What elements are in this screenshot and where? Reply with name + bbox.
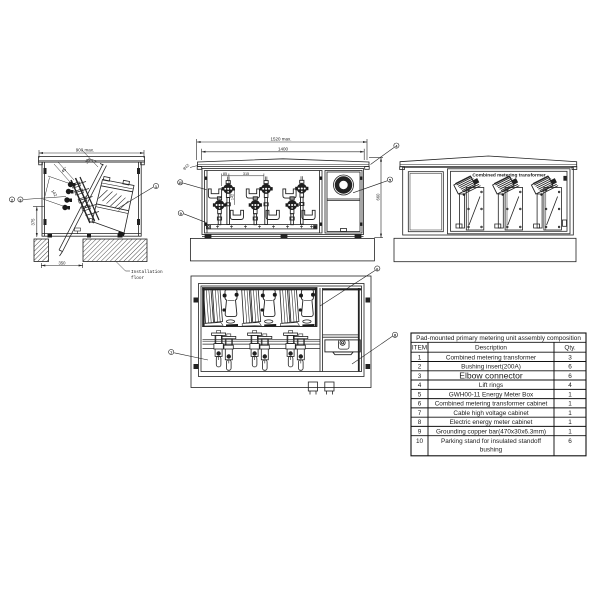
svg-text:85: 85: [223, 172, 227, 176]
svg-text:2: 2: [418, 364, 422, 371]
svg-text:6: 6: [568, 373, 572, 380]
svg-text:315: 315: [243, 172, 249, 176]
svg-text:ITEM: ITEM: [412, 345, 427, 352]
svg-text:6: 6: [568, 364, 572, 371]
svg-text:1400: 1400: [278, 146, 289, 151]
svg-text:Cable high voltage cabinet: Cable high voltage cabinet: [453, 410, 529, 417]
svg-text:Electric energy meter cabinet: Electric energy meter cabinet: [450, 419, 533, 426]
svg-text:1: 1: [568, 401, 572, 408]
svg-text:7: 7: [418, 410, 422, 417]
svg-text:1: 1: [568, 410, 572, 417]
svg-text:Pad-mounted primary metering u: Pad-mounted primary metering unit assemb…: [416, 335, 581, 342]
svg-text:Elbow connector: Elbow connector: [459, 371, 523, 381]
svg-text:Grounding copper bar(470x30x6.: Grounding copper bar(470x30x6.3mm): [436, 429, 546, 436]
svg-text:Installation: Installation: [131, 270, 163, 275]
svg-text:4: 4: [568, 382, 572, 389]
svg-text:142: 142: [231, 194, 235, 200]
svg-text:8: 8: [418, 419, 422, 426]
svg-text:Lift rings: Lift rings: [479, 382, 503, 389]
svg-text:10: 10: [178, 181, 182, 185]
svg-text:5: 5: [418, 391, 422, 398]
svg-text:4: 4: [418, 382, 422, 389]
svg-text:floor: floor: [131, 276, 145, 281]
svg-text:1: 1: [568, 419, 572, 426]
svg-text:3: 3: [568, 354, 572, 361]
svg-text:Parking stand for insulated st: Parking stand for insulated standoff: [441, 438, 541, 445]
svg-text:bushing: bushing: [480, 447, 503, 454]
svg-text:350: 350: [59, 261, 67, 266]
svg-text:9: 9: [418, 429, 422, 436]
svg-text:Combined metering transformer: Combined metering transformer cabinet: [435, 401, 548, 408]
svg-text:900 max.: 900 max.: [76, 148, 95, 153]
svg-text:10: 10: [416, 438, 424, 445]
svg-text:Description: Description: [475, 345, 507, 352]
svg-text:1: 1: [418, 354, 422, 361]
svg-text:375: 375: [31, 218, 36, 226]
svg-text:1520 max.: 1520 max.: [270, 137, 291, 142]
svg-text:1: 1: [568, 429, 572, 436]
svg-text:6: 6: [418, 401, 422, 408]
svg-text:Qty.: Qty.: [564, 345, 575, 352]
svg-text:660: 660: [376, 193, 381, 201]
svg-text:6: 6: [568, 438, 572, 445]
svg-text:3: 3: [418, 373, 422, 380]
svg-text:1: 1: [568, 391, 572, 398]
svg-text:Combined metering transformer: Combined metering transformer: [446, 354, 537, 361]
svg-text:GWH00-11 Energy Meter Box: GWH00-11 Energy Meter Box: [449, 391, 534, 398]
